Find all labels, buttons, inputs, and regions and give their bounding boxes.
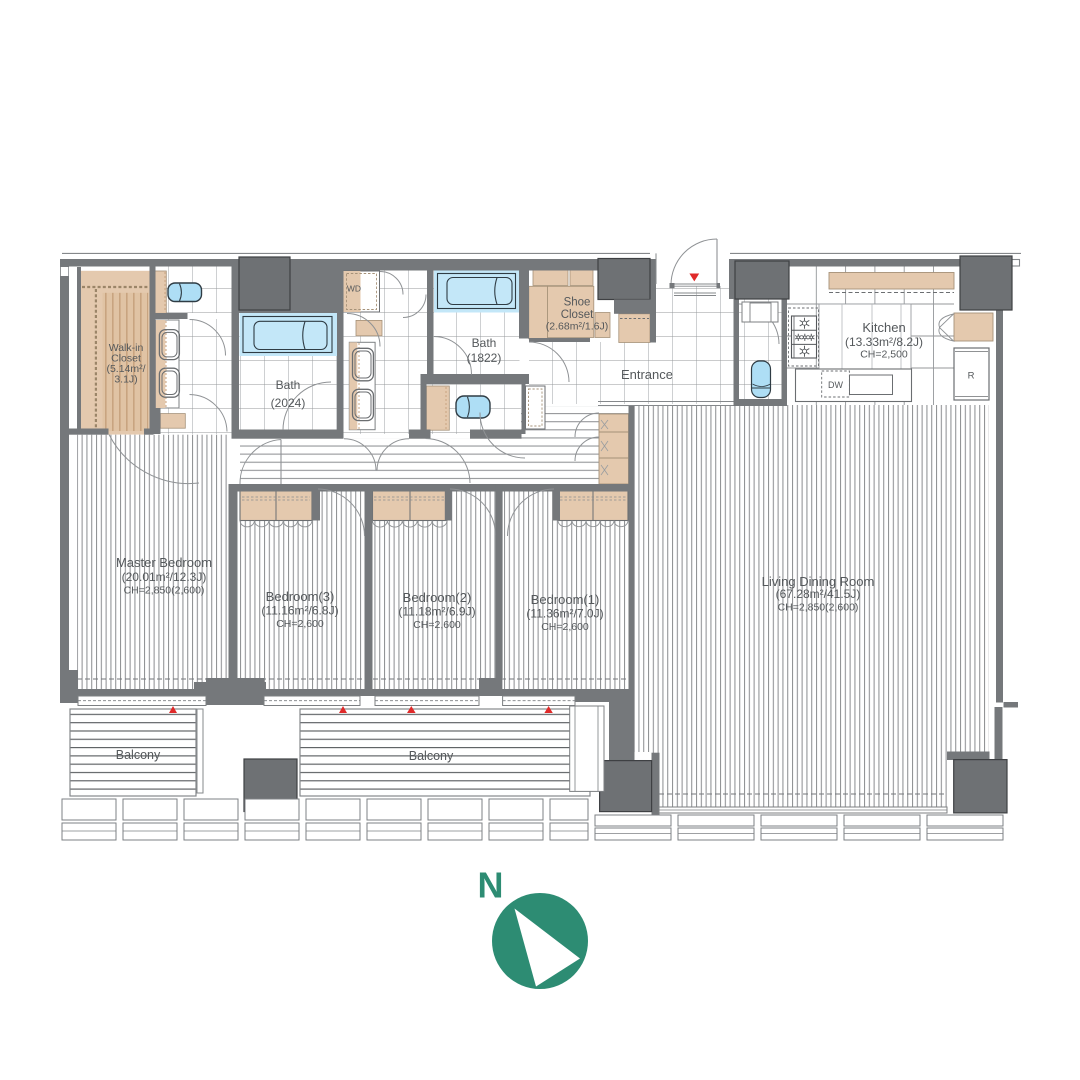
svg-text:(2024): (2024) — [271, 396, 306, 410]
svg-text:Entrance: Entrance — [621, 367, 673, 382]
svg-text:Bedroom(2): Bedroom(2) — [403, 590, 472, 605]
svg-text:Shoe: Shoe — [564, 297, 591, 309]
svg-text:N: N — [478, 865, 504, 906]
svg-text:WD: WD — [347, 284, 361, 294]
svg-text:Bedroom(1): Bedroom(1) — [531, 592, 600, 607]
svg-text:R: R — [968, 371, 975, 382]
svg-text:(11.18m²/6.9J): (11.18m²/6.9J) — [398, 605, 475, 619]
svg-text:(11.16m²/6.8J): (11.16m²/6.8J) — [261, 604, 338, 618]
svg-text:CH=2,500: CH=2,500 — [860, 349, 908, 361]
svg-text:(2.68m²/1.6J): (2.68m²/1.6J) — [546, 321, 608, 333]
svg-text:CH=2,600: CH=2,600 — [413, 619, 461, 631]
svg-text:(13.33m²/8.2J): (13.33m²/8.2J) — [845, 335, 923, 349]
svg-text:Bath: Bath — [276, 378, 301, 392]
svg-text:Balcony: Balcony — [409, 749, 454, 763]
svg-text:(1822): (1822) — [467, 351, 502, 365]
svg-text:CH=2,850(2,600): CH=2,850(2,600) — [124, 585, 205, 597]
svg-text:(67.28m²/41.5J): (67.28m²/41.5J) — [776, 587, 861, 601]
svg-text:Bath: Bath — [472, 336, 497, 350]
svg-text:CH=2,850(2,600): CH=2,850(2,600) — [778, 602, 859, 614]
svg-text:Kitchen: Kitchen — [862, 320, 905, 335]
svg-text:Bedroom(3): Bedroom(3) — [266, 589, 335, 604]
svg-text:CH=2,600: CH=2,600 — [541, 621, 589, 633]
svg-text:(11.36m²/7.0J): (11.36m²/7.0J) — [526, 607, 603, 621]
svg-text:Master Bedroom: Master Bedroom — [116, 555, 212, 570]
svg-text:Balcony: Balcony — [116, 748, 161, 762]
svg-text:DW: DW — [828, 380, 843, 390]
svg-text:(20.01m²/12.3J): (20.01m²/12.3J) — [122, 570, 207, 584]
svg-text:Closet: Closet — [561, 309, 594, 321]
svg-text:CH=2,600: CH=2,600 — [276, 618, 324, 630]
svg-text:3.1J): 3.1J) — [114, 374, 137, 386]
